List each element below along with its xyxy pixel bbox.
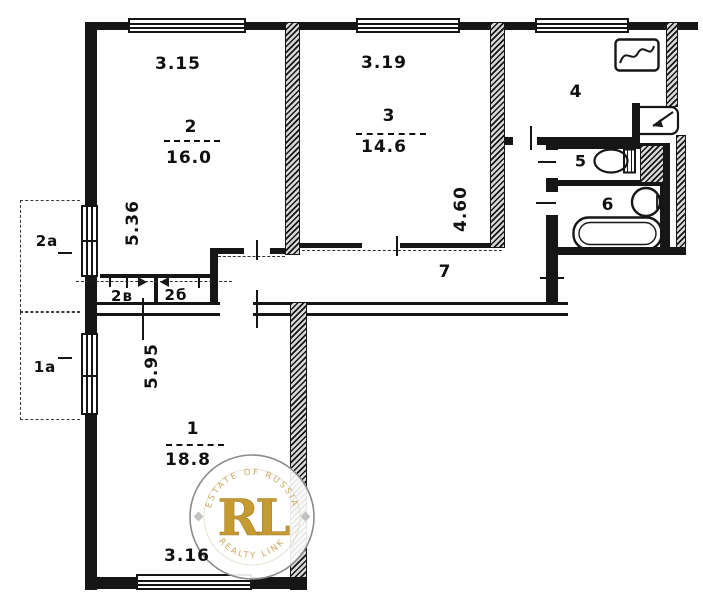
closet-2v-label: 2в xyxy=(111,287,133,305)
closet-tick xyxy=(91,274,93,288)
closet-tick xyxy=(198,274,200,288)
bathtub-icon xyxy=(572,216,664,252)
door-tick xyxy=(538,161,556,163)
room1-area: 18.8 xyxy=(165,450,211,470)
wall xyxy=(546,178,558,192)
balcony-outline-2a xyxy=(20,200,80,312)
door-tick xyxy=(256,290,258,328)
wc-number: 5 xyxy=(575,152,587,171)
wall xyxy=(546,215,558,312)
kitchen-number: 4 xyxy=(570,82,583,102)
wall xyxy=(400,243,490,248)
door-tick xyxy=(256,240,258,260)
wall xyxy=(300,243,362,248)
room3-number: 3 xyxy=(383,106,396,126)
balcony-1a-label: 1а xyxy=(34,358,57,376)
wall xyxy=(218,248,244,254)
wall xyxy=(666,22,678,107)
balcony-door-window xyxy=(81,333,98,415)
closet-tick xyxy=(215,275,217,287)
room2-width-dim: 3.15 xyxy=(155,54,201,74)
bathroom-number: 6 xyxy=(602,195,615,215)
wall xyxy=(676,135,686,255)
kitchen-sink-icon xyxy=(614,38,660,72)
wall xyxy=(546,143,558,150)
door-tick xyxy=(396,236,398,256)
closet-arrow xyxy=(138,277,147,287)
wall-dashed-line xyxy=(218,256,285,257)
wall xyxy=(270,248,285,254)
closet-2b-label: 2б xyxy=(165,286,188,304)
floor-plan: 3.15 2 16.0 5.36 3.19 3 14.6 4.60 4 5 6 … xyxy=(0,0,703,600)
wall xyxy=(490,22,505,248)
room1-depth-dim: 5.95 xyxy=(142,343,162,389)
ventilation-shaft xyxy=(640,145,664,183)
wall xyxy=(85,415,97,590)
closet-tick xyxy=(126,274,128,288)
watermark-initials: RL xyxy=(218,488,291,547)
wall xyxy=(505,137,513,145)
room1-underline xyxy=(166,436,224,446)
door-tick xyxy=(540,277,564,279)
room2-depth-dim: 5.36 xyxy=(123,200,143,246)
room2-area: 16.0 xyxy=(166,148,212,168)
balcony-2a-label: 2а xyxy=(36,232,59,250)
room1-width-dim: 3.16 xyxy=(164,546,210,566)
closet-tick xyxy=(109,275,111,287)
dimension-tick xyxy=(58,252,72,254)
window xyxy=(356,18,460,33)
axis-tick xyxy=(142,298,144,340)
wall xyxy=(285,22,300,255)
closet-door-line xyxy=(76,281,232,282)
dimension-tick xyxy=(58,357,72,359)
window xyxy=(128,18,246,33)
washbasin-icon xyxy=(628,184,666,220)
entrance-door-icon xyxy=(636,104,682,138)
corridor-number: 7 xyxy=(439,262,452,282)
room3-underline xyxy=(356,125,426,135)
wall-dashed-line xyxy=(302,250,502,251)
room2-underline xyxy=(164,132,220,142)
wall xyxy=(85,22,97,207)
door-tick xyxy=(536,202,556,204)
balcony-door-window xyxy=(81,205,98,277)
window xyxy=(535,18,629,33)
door-tick xyxy=(530,126,532,150)
room3-area: 14.6 xyxy=(361,137,407,157)
room3-width-dim: 3.19 xyxy=(361,53,407,73)
room3-depth-dim: 4.60 xyxy=(451,186,471,232)
toilet-icon xyxy=(592,146,642,178)
